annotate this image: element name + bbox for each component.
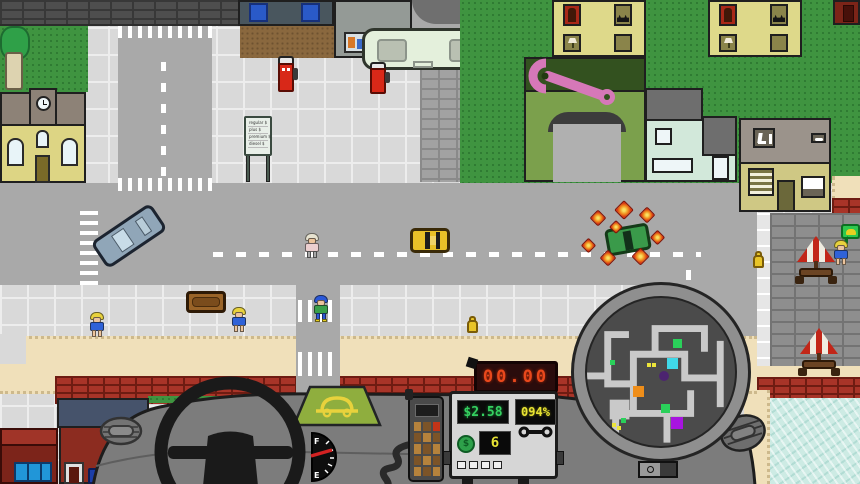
- meter-button[interactable]: [457, 461, 466, 469]
- phone-keypad[interactable]: [414, 422, 440, 476]
- marker-cyan: [667, 358, 678, 369]
- fuel-empty-label: E: [314, 471, 319, 480]
- meter-bracket-left: [443, 451, 451, 465]
- meter-button[interactable]: [481, 461, 490, 469]
- timer-value: 00.00: [483, 367, 549, 387]
- dot-green-1: [610, 360, 615, 365]
- meter-button[interactable]: [493, 461, 502, 469]
- dot-green-2: [621, 418, 626, 423]
- marker-orange: [633, 386, 644, 397]
- timer-display: 00.00: [474, 361, 558, 393]
- meter-leg: [518, 477, 529, 484]
- condition-display: 094%: [515, 399, 556, 425]
- game-viewport: regular $ plus $ premium $ diesel $: [0, 0, 860, 484]
- phone-screen: [415, 404, 439, 417]
- dot-yellow-4: [617, 426, 621, 430]
- meter-leg: [462, 477, 473, 484]
- taximeter: $2.58 094% $ 6: [449, 391, 558, 479]
- marker-green-1: [673, 339, 682, 348]
- dashboard-switch[interactable]: [638, 461, 678, 478]
- wrench-icon: [518, 426, 554, 438]
- minimap-screen: [585, 296, 737, 448]
- dollar-coin-icon: $: [457, 435, 475, 453]
- dot-yellow-3: [612, 423, 616, 427]
- marker-magenta: [671, 417, 683, 429]
- cb-phone[interactable]: [408, 396, 444, 482]
- marker-green-2: [661, 404, 670, 413]
- minimap: [571, 282, 751, 462]
- meter-bracket-right: [556, 451, 564, 465]
- dot-yellow-1: [647, 363, 651, 367]
- power-switch-icon: [640, 463, 660, 476]
- meter-button[interactable]: [469, 461, 478, 469]
- phone-antenna: [405, 389, 413, 400]
- taxi-roof-light: [294, 387, 380, 425]
- dot-yellow-2: [652, 363, 656, 367]
- fare-display: $2.58: [457, 400, 509, 424]
- fuel-full-label: F: [314, 437, 319, 446]
- player-marker: [659, 371, 669, 381]
- passenger-display: 6: [479, 431, 511, 455]
- dashboard-vent-left: [101, 418, 141, 444]
